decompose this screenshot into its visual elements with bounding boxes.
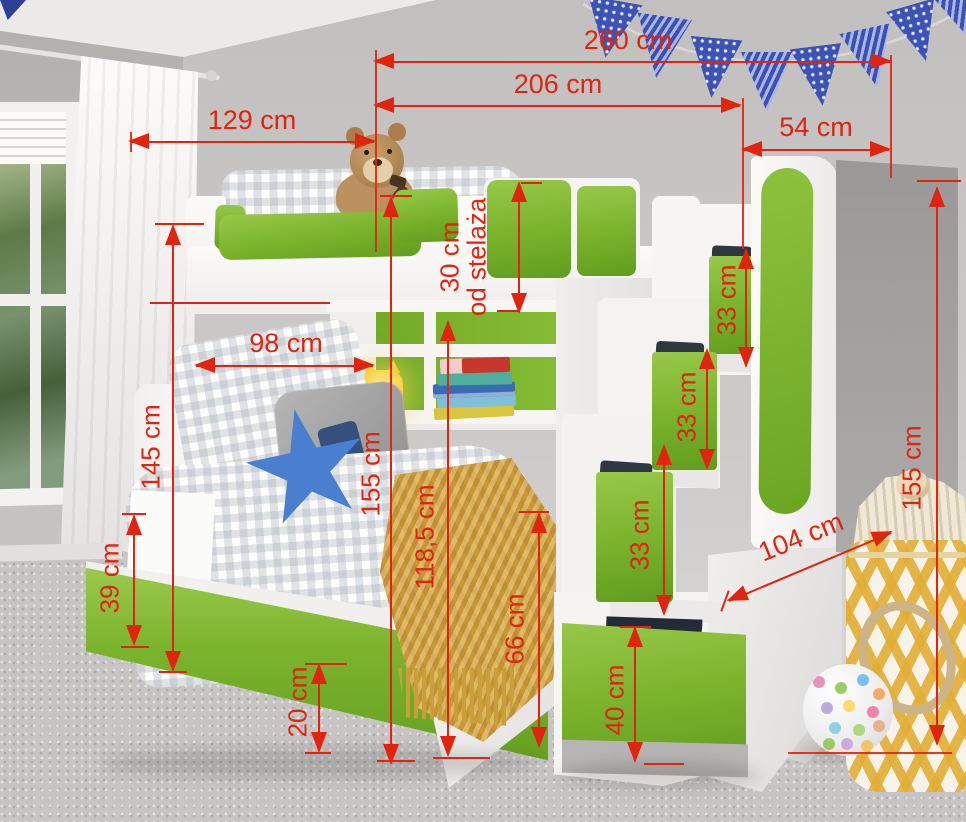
dim-stairs-height-line [936,188,938,744]
beach-ball [803,664,893,756]
dim-shelf-width-line [196,365,373,367]
bunk-bed-dimension-diagram: 260 cm 206 cm 129 cm 54 cm 30 cm od stel… [0,0,966,822]
dim-tick [305,752,331,754]
teddy-bear-eye [387,149,392,154]
blanket-fringe [398,668,520,726]
teddy-bear-eye [364,150,369,155]
dim-left-width-label: 129 cm [208,106,297,134]
dim-bed-length-label: 206 cm [514,70,603,98]
dim-step-low-line [663,446,665,614]
dim-total-width-line [375,61,890,63]
dim-tick [497,310,518,312]
dim-tick [433,757,490,759]
beach-ball-dots [813,676,825,688]
witness-line [150,302,330,304]
dim-tick [121,646,149,648]
dim-step-mid-label: 33 cm [673,372,700,443]
window-blind [0,112,66,164]
upper-end-green-panel [487,180,571,278]
dim-platform-height-line [390,198,392,763]
dim-trundle-front-label: 39 cm [96,543,123,614]
dim-underbed-height-label: 118,5 cm [411,484,438,589]
dim-bottom-drawer-line [634,628,636,761]
dim-tick [620,626,651,628]
dim-bottom-drawer-label: 40 cm [601,665,628,736]
dim-tick [380,195,412,197]
dim-rail-height-line [518,183,520,312]
dim-trundle-clearance-label: 20 cm [284,667,311,738]
dim-tick [519,511,549,513]
dim-footboard-height-line [538,514,540,746]
witness-line [742,98,744,249]
witness-line [890,55,892,178]
dim-step-top-label: 33 cm [713,265,740,336]
shelf-board [330,344,570,357]
dim-stairs-height-label: 155 cm [898,425,925,510]
dim-tick [788,752,952,754]
dim-step-mid-line [706,350,708,468]
laundry-bag-seam [848,552,966,558]
dim-headboard-height-label: 145 cm [137,404,164,489]
book [440,357,510,374]
dim-left-width-line [130,141,374,143]
dim-trundle-front-line [133,516,135,644]
dim-total-width-label: 260 cm [584,26,673,54]
shadow [560,762,760,788]
dim-platform-height-label: 155 cm [357,431,384,516]
dim-tick [159,671,187,673]
dim-underbed-height-line [447,322,449,755]
dim-headboard-height-line [172,226,174,670]
dim-bed-length-line [375,105,740,107]
dim-step-low-label: 33 cm [626,500,653,571]
dim-shelf-width-label: 98 cm [249,329,323,357]
shelf-divider [424,310,436,424]
upper-end-green-panel [577,186,636,276]
dim-tick [305,663,347,665]
dim-stairs-depth-label: 54 cm [779,113,853,141]
dim-footboard-height-label: 66 cm [501,594,528,665]
dim-tick [377,760,415,762]
window-mullion-v [30,164,41,490]
dim-tick [644,763,684,765]
witness-line [375,50,377,252]
dim-trundle-clearance-line [318,665,320,751]
dim-tick [917,180,961,182]
dim-rail-height-label: 30 cm od stelaża [437,198,492,317]
handrail-green-board [758,168,813,514]
dim-tick [122,513,146,515]
window-mullion-h [0,294,66,306]
dim-tick [155,223,204,225]
curtain-rod-finial [206,70,217,81]
dim-step-top-line [745,250,747,366]
dim-stairs-depth-line [743,149,889,151]
dim-tick [521,182,542,184]
